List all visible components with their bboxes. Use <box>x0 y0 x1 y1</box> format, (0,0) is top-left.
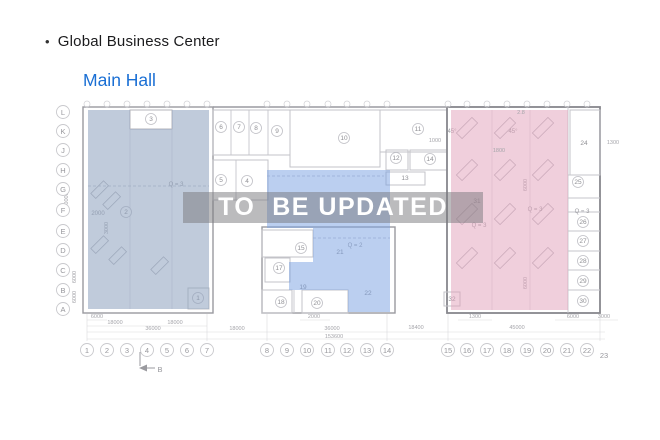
dimension-label: 18400 <box>408 325 423 331</box>
grid-row-label: A <box>60 305 65 314</box>
grid-col-label: 3 <box>125 346 129 355</box>
grid-row-label: E <box>60 227 65 236</box>
grid-col-label: 12 <box>343 346 351 355</box>
room-label: 9 <box>275 128 279 135</box>
room-label: 18 <box>277 299 285 306</box>
grid-tick <box>264 101 270 107</box>
room-label: 11 <box>415 126 422 133</box>
room-label: 6 <box>219 124 223 131</box>
grid-row-label: L <box>61 108 65 117</box>
grid-tick <box>144 101 150 107</box>
grid-tick <box>284 101 290 107</box>
room-label: 29 <box>579 278 587 285</box>
section-marker-label: B <box>157 365 162 374</box>
room-label: 20 <box>313 300 321 307</box>
dimension-label: 6000 <box>72 271 78 283</box>
grid-tick <box>164 101 170 107</box>
grid-col-label: 14 <box>383 346 391 355</box>
grid-row-label: F <box>61 206 66 215</box>
grid-tick <box>124 101 130 107</box>
note-label: Q = 3 <box>575 209 591 215</box>
grid-col-label: 11 <box>324 346 332 355</box>
dimension-label: 3000 <box>598 314 610 320</box>
room-label: 28 <box>579 258 587 265</box>
dimension-label: 2.8 <box>517 110 525 116</box>
grid-col-label: 17 <box>483 346 491 355</box>
dimension-label: 1000 <box>429 138 441 144</box>
dimension-label: 36000 <box>145 326 160 332</box>
grid-col-label: 2 <box>105 346 109 355</box>
dimension-label: 2000 <box>308 314 320 320</box>
room-label: 26 <box>579 219 587 226</box>
watermark-band: TO BE UPDATED <box>183 192 483 223</box>
dimension-label: 18000 <box>229 326 244 332</box>
grid-tick <box>184 101 190 107</box>
dimension-label: 6000 <box>91 314 103 320</box>
grid-tick <box>344 101 350 107</box>
grid-col-label: 1 <box>85 346 89 355</box>
room-label: 17 <box>275 265 283 272</box>
room-label: 3 <box>149 116 153 123</box>
room-label: 5 <box>219 177 223 184</box>
grid-col-label: 23 <box>600 351 608 360</box>
wall <box>290 110 380 167</box>
dimension-label: 45000 <box>509 325 524 331</box>
grid-row-label: C <box>60 266 66 275</box>
room-label: 13 <box>401 175 409 182</box>
wall <box>302 290 348 313</box>
room-label: 24 <box>580 140 588 147</box>
grid-tick <box>325 101 331 107</box>
room-label: 15 <box>297 245 305 252</box>
grid-row-label: D <box>60 246 66 255</box>
dimension-label: 1300 <box>469 314 481 320</box>
page: •Global Business Center Main Hall 131921… <box>0 0 660 440</box>
watermark-text: TO BE UPDATED <box>218 193 448 222</box>
room-label: 12 <box>392 155 400 162</box>
dimension-label: 6000 <box>72 291 78 303</box>
grid-col-label: 13 <box>363 346 371 355</box>
room-label: 4 <box>245 178 249 185</box>
grid-tick <box>104 101 110 107</box>
dimension-label: 6000 <box>567 314 579 320</box>
grid-col-label: 10 <box>303 346 311 355</box>
grid-tick <box>204 101 210 107</box>
grid-col-label: 19 <box>523 346 531 355</box>
grid-row-label: H <box>60 166 65 175</box>
dimension-label: 1300 <box>607 140 619 146</box>
grid-col-label: 5 <box>165 346 169 355</box>
dimension-label: 18000 <box>107 320 122 326</box>
grid-col-label: 21 <box>563 346 571 355</box>
room-label: 7 <box>237 124 241 131</box>
grid-col-label: 22 <box>583 346 591 355</box>
room-label: 30 <box>579 298 587 305</box>
grid-row-label: G <box>60 185 66 194</box>
grid-tick <box>384 101 390 107</box>
room-label: 10 <box>340 135 348 142</box>
room-label: 27 <box>579 238 587 245</box>
grid-col-label: 20 <box>543 346 551 355</box>
grid-col-label: 4 <box>145 346 149 355</box>
room-label: 25 <box>574 179 582 186</box>
room-label: 14 <box>426 156 434 163</box>
room-label: 8 <box>254 125 258 132</box>
grid-col-label: 18 <box>503 346 511 355</box>
grid-col-label: 9 <box>285 346 289 355</box>
grid-tick <box>84 101 90 107</box>
grid-tick <box>364 101 370 107</box>
grid-row-label: B <box>60 286 65 295</box>
grid-tick <box>304 101 310 107</box>
grid-col-label: 16 <box>463 346 471 355</box>
dimension-label: 18000 <box>167 320 182 326</box>
wall <box>262 230 313 257</box>
grid-col-label: 15 <box>444 346 452 355</box>
dimension-label: 36000 <box>324 326 339 332</box>
dimension-label: 1800 <box>493 148 505 154</box>
grid-col-label: 7 <box>205 346 209 355</box>
grid-row-label: J <box>61 146 65 155</box>
grid-col-label: 6 <box>185 346 189 355</box>
grid-col-label: 8 <box>265 346 269 355</box>
grid-row-label: K <box>60 127 65 136</box>
dimension-label: 153600 <box>325 334 343 340</box>
